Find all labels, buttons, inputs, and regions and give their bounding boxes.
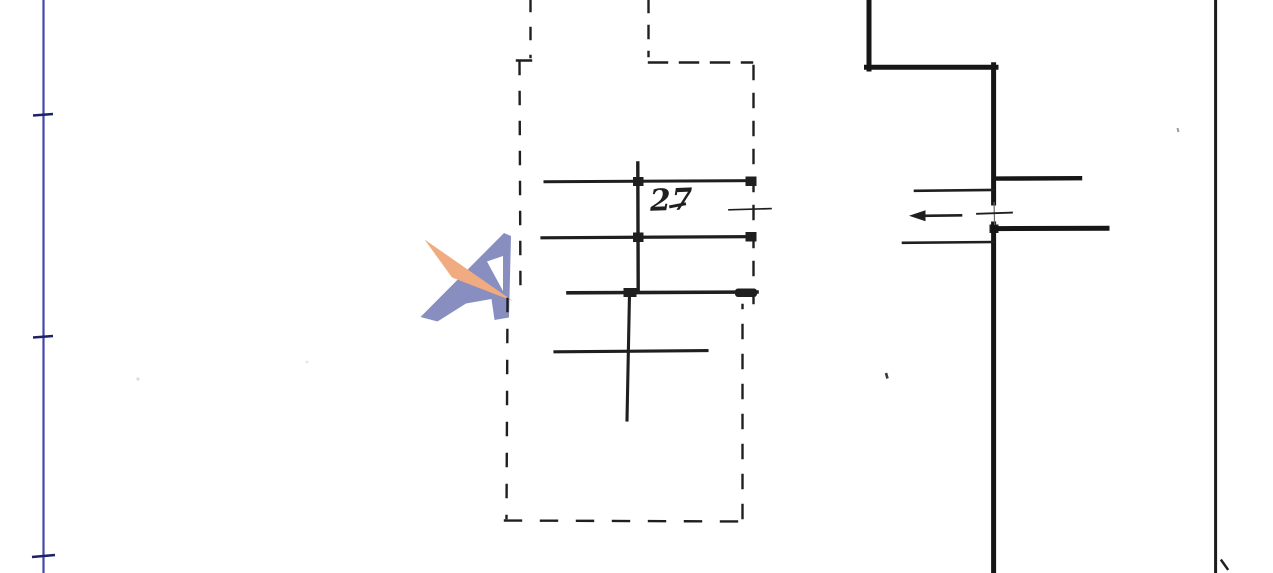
dashed-edge — [520, 62, 521, 299]
dimension-line — [555, 351, 707, 352]
scan-speck — [886, 373, 888, 379]
ruler-tick — [33, 114, 53, 116]
thin-line — [915, 190, 993, 191]
node-square — [746, 177, 757, 187]
plan-drawing — [0, 0, 1273, 573]
dimension-line — [542, 237, 753, 238]
node-square — [746, 232, 757, 242]
watermark-logo-icon — [421, 233, 514, 322]
wall-structure — [867, 0, 1108, 573]
dashed-edge — [505, 521, 742, 522]
sheet-border — [1216, 0, 1228, 573]
ruler-tick — [33, 336, 53, 338]
node-blob — [735, 289, 757, 298]
border-tick — [1222, 561, 1228, 570]
dimension-line — [545, 181, 753, 182]
node-square — [624, 288, 637, 297]
ruler — [32, 0, 55, 573]
left-arrow-shaft — [923, 215, 961, 216]
scanned-plan-sheet: 27 — [0, 0, 1273, 573]
room-number-text: 27 — [649, 182, 694, 219]
dimension-line — [627, 294, 630, 420]
thin-line — [903, 242, 993, 243]
node-square — [633, 233, 644, 243]
scan-noise — [136, 128, 1178, 381]
node-square — [633, 177, 644, 186]
dashed-edge — [507, 299, 508, 518]
scan-speck — [306, 361, 309, 364]
dimension-line — [568, 292, 757, 293]
scan-speck — [136, 377, 139, 380]
scan-speck — [1178, 128, 1179, 132]
parcel-dashed-outline — [505, 0, 754, 522]
dimension-tick — [729, 209, 771, 210]
door-gap-tick — [977, 213, 1012, 214]
ruler-tick — [32, 555, 55, 557]
room-number-label: 27 — [649, 185, 694, 221]
